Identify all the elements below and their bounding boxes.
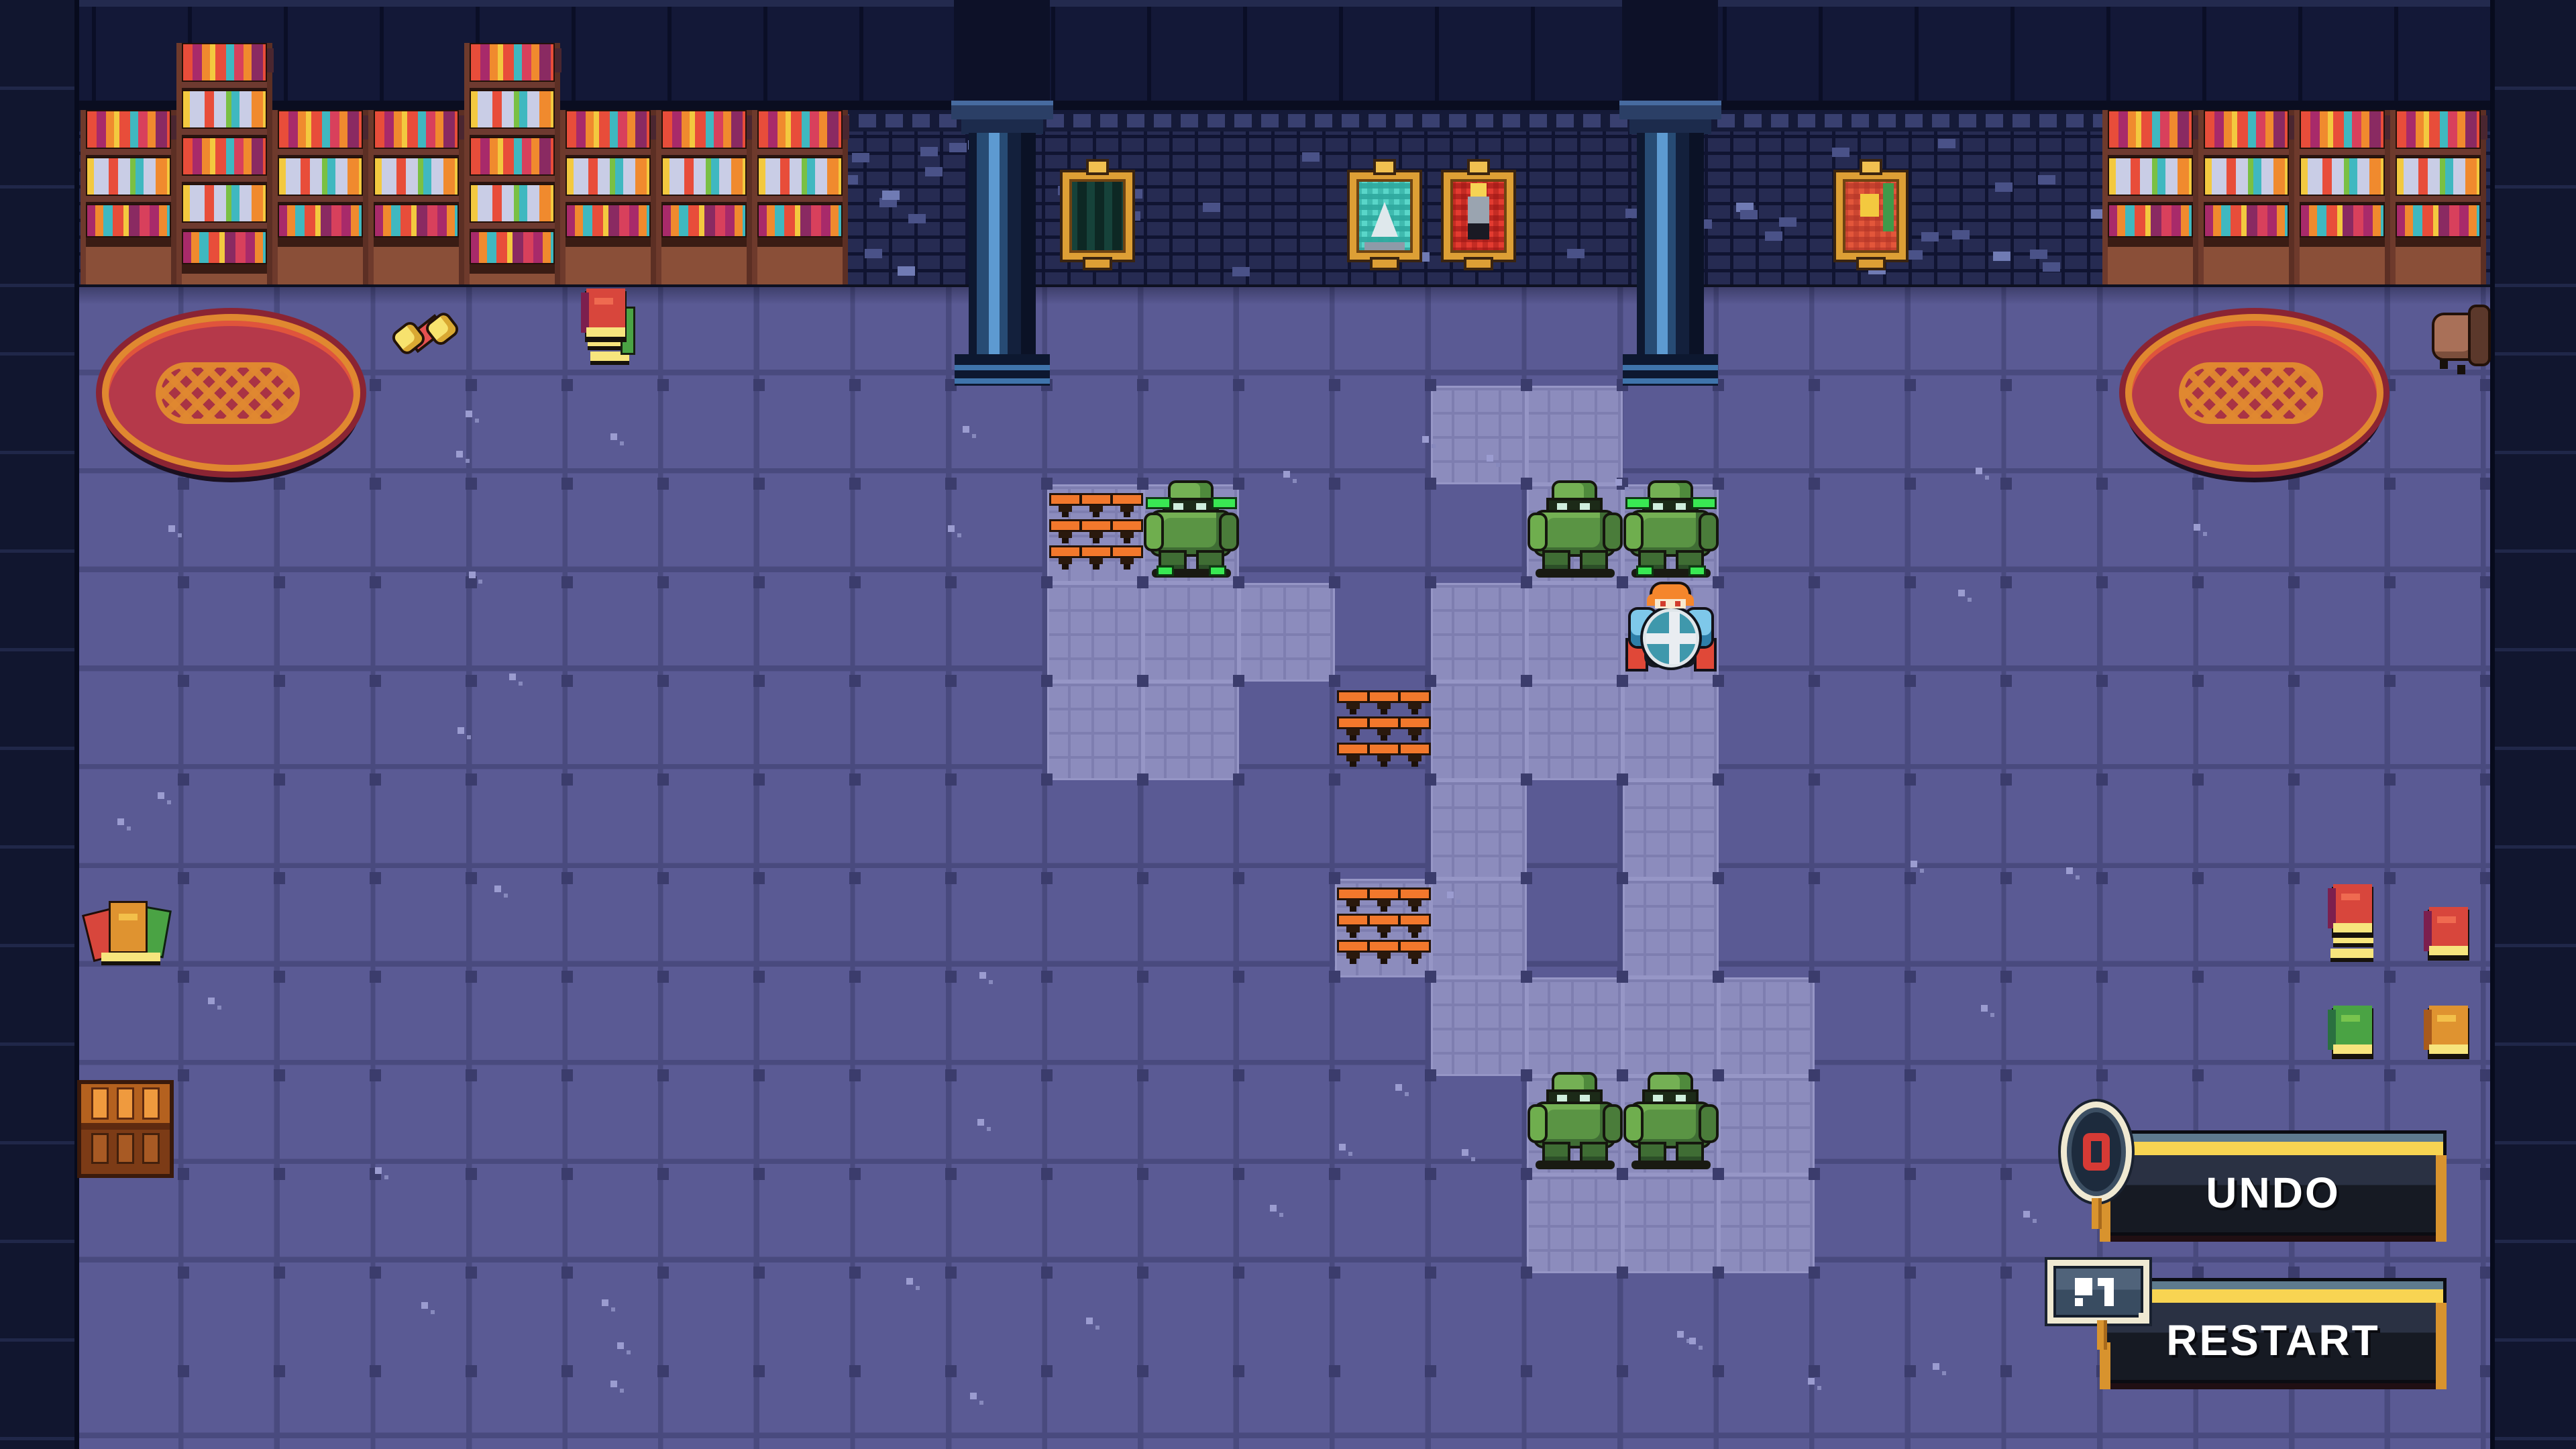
stool-top — [1401, 916, 1429, 924]
stool-leg — [1377, 926, 1391, 932]
stool-top — [1113, 547, 1141, 556]
tile-corner-dot — [2384, 971, 2396, 983]
tile-corner-dot — [945, 872, 957, 884]
rug-weave-pattern — [156, 362, 300, 424]
wall-highlight-brick — [1203, 203, 1220, 212]
book-row — [470, 90, 555, 129]
stool-top — [1082, 521, 1110, 530]
pillar-column — [969, 133, 1036, 356]
floor-sparkle — [1981, 1005, 1988, 1012]
tile-corner-dot — [274, 872, 285, 884]
stool — [1401, 745, 1429, 767]
stool-top — [1370, 692, 1398, 701]
tile-corner-dot — [2384, 478, 2396, 490]
book-spine — [581, 292, 589, 333]
goal-glow-bar — [1690, 568, 1704, 574]
tile-corner-dot — [945, 576, 957, 588]
tile-corner-dot — [1904, 1069, 1916, 1081]
tile-corner-dot — [1425, 872, 1436, 884]
tile-corner-dot — [1521, 1365, 1532, 1377]
floor-tile-light — [1431, 682, 1527, 780]
tile-corner-dot — [1809, 1069, 1820, 1081]
tile-corner-dot — [1041, 971, 1053, 983]
wall-highlight-brick — [1232, 267, 1250, 276]
floor-sparkle — [1283, 471, 1290, 478]
floor-sparkle — [466, 411, 472, 417]
tile-corner-dot — [849, 1365, 861, 1377]
book-row — [566, 110, 651, 149]
stool-top — [1339, 916, 1367, 924]
tile-corner-dot — [2096, 1069, 2108, 1081]
pillar-capital — [951, 101, 1053, 119]
tile-corner-dot — [2384, 1069, 2396, 1081]
stool — [1051, 547, 1079, 570]
floor-sparkle — [458, 727, 464, 734]
tile-corner-dot — [849, 478, 861, 490]
golem-eye — [1653, 503, 1663, 511]
shelf-foot — [470, 264, 555, 274]
book-row — [2396, 110, 2481, 149]
golem-eye — [1676, 1095, 1686, 1102]
bookshelf — [560, 110, 656, 284]
golem-eye — [1653, 1095, 1663, 1102]
stool-top — [1339, 718, 1367, 727]
rug — [2125, 314, 2383, 472]
tile-corner-dot — [753, 478, 765, 490]
stool-leg — [1346, 952, 1360, 959]
bookshelf — [80, 110, 176, 284]
tile-corner-dot — [657, 872, 669, 884]
tile-corner-dot — [1809, 1365, 1820, 1377]
tile-corner-dot — [945, 971, 957, 983]
tile-corner-dot — [1713, 1267, 1724, 1279]
tile-corner-dot — [274, 1365, 285, 1377]
tile-corner-dot — [561, 773, 573, 786]
tile-corner-dot — [1041, 478, 1053, 490]
tile-corner-dot — [2000, 1365, 2012, 1377]
wall-highlight-brick — [882, 191, 900, 200]
tile-corner-dot — [1329, 576, 1340, 588]
tile-corner-dot — [178, 971, 189, 983]
floor-sparkle — [456, 451, 463, 458]
restart-button-label: RESTART — [2103, 1308, 2443, 1373]
shelf-divider — [757, 196, 843, 204]
painting-autumn — [1836, 172, 1906, 260]
tile-corner-dot — [753, 1168, 765, 1180]
tile-corner-dot — [849, 1168, 861, 1180]
golem-body — [1152, 513, 1230, 554]
book-row — [757, 204, 843, 237]
tile-corner-dot — [274, 773, 285, 786]
stool-leg — [1346, 900, 1360, 906]
stool-foot — [1411, 906, 1418, 912]
tile-corner-dot — [1329, 773, 1340, 786]
stool-top — [1370, 718, 1398, 727]
painting-green-stripe — [1883, 183, 1894, 231]
floor-tile-light — [1623, 780, 1719, 879]
book-pages — [586, 327, 625, 337]
stool — [1339, 692, 1367, 715]
shelf-foot — [2396, 237, 2481, 247]
tile-corner-dot — [274, 1267, 285, 1279]
shelf-divider — [2300, 149, 2385, 157]
shelf-divider — [86, 149, 171, 157]
stool-foot — [1350, 932, 1356, 938]
shelf-divider — [2204, 196, 2289, 204]
stool-leg — [1120, 505, 1134, 512]
book-row — [86, 157, 171, 196]
tile-corner-dot — [466, 773, 477, 786]
bookshelf — [2294, 110, 2390, 284]
floor-tile-light — [1239, 583, 1335, 682]
stool-leg — [1120, 557, 1134, 564]
tile-corner-dot — [178, 576, 189, 588]
floor-sparkle — [970, 1393, 977, 1399]
stool — [1370, 692, 1398, 715]
tile-corner-dot — [1233, 1267, 1244, 1279]
shelf-divider — [470, 82, 555, 90]
tile-corner-dot — [561, 1365, 573, 1377]
tile-corner-dot — [2096, 872, 2108, 884]
tile-corner-dot — [561, 1069, 573, 1081]
tile-corner-dot — [2384, 675, 2396, 687]
tile-corner-dot — [178, 1168, 189, 1180]
tile-corner-dot — [753, 1365, 765, 1377]
tile-corner-dot — [945, 1267, 957, 1279]
dark-ceiling-band — [0, 0, 2576, 109]
tile-corner-dot — [2000, 1168, 2012, 1180]
tile-corner-dot — [2096, 379, 2108, 391]
golem-shadow — [1631, 1161, 1711, 1169]
stool-foot — [1093, 538, 1099, 543]
tile-corner-dot — [274, 675, 285, 687]
stool-leg — [1408, 952, 1421, 959]
golem-eye-band — [1549, 500, 1600, 513]
tile-corner-dot — [1904, 1168, 1916, 1180]
tile-corner-dot — [1233, 379, 1244, 391]
pillar-capital — [1619, 101, 1721, 119]
golem-arm-left — [1626, 515, 1641, 549]
floor-sparkle — [158, 792, 164, 799]
tile-corner-dot — [1041, 872, 1053, 884]
goal-glow-bar — [1159, 568, 1172, 574]
book-row — [182, 184, 267, 223]
undo-button-label: UNDO — [2103, 1161, 2443, 1225]
wall-highlight-brick — [1302, 152, 1320, 162]
stool — [1370, 916, 1398, 938]
tile-corner-dot — [753, 576, 765, 588]
tile-corner-dot — [849, 576, 861, 588]
stool-foot — [1124, 512, 1130, 517]
shelf-divider — [2396, 149, 2481, 157]
floor-sparkle — [1422, 436, 1429, 443]
shelf-divider — [374, 149, 459, 157]
rug-weave-pattern — [2179, 362, 2323, 424]
painting-tower — [1468, 197, 1489, 223]
tile-corner-dot — [561, 1168, 573, 1180]
tile-corner-dot — [1425, 478, 1436, 490]
painting-hanger-knob — [1376, 162, 1393, 172]
book-spine — [2424, 1010, 2432, 1050]
tile-corner-dot — [274, 971, 285, 983]
floor-tile-light — [1719, 1076, 1815, 1175]
stool-leg — [1089, 557, 1103, 564]
tile-corner-dot — [466, 872, 477, 884]
tile-corner-dot — [1137, 1069, 1148, 1081]
tile-corner-dot — [753, 379, 765, 391]
stool-leg — [1377, 952, 1391, 959]
tile-corner-dot — [1041, 1069, 1053, 1081]
floor-tile-light — [1047, 583, 1143, 682]
floor-sparkle — [906, 1278, 913, 1285]
floor-tile-light — [1143, 583, 1239, 682]
red-book — [586, 288, 625, 337]
floor-tile-light — [1527, 1175, 1623, 1273]
stool-top — [1401, 718, 1429, 727]
book-row — [86, 204, 171, 237]
undo-button[interactable]: UNDO — [2103, 1134, 2443, 1232]
tile-corner-dot — [2192, 971, 2204, 983]
wall-highlight-brick — [1779, 217, 1796, 227]
tile-corner-dot — [2384, 379, 2396, 391]
tile-corner-dot — [2096, 675, 2108, 687]
page-slab — [2330, 949, 2373, 958]
floor-sparkle — [1976, 468, 1982, 474]
crate-slat — [93, 1135, 107, 1162]
tile-corner-dot — [945, 1069, 957, 1081]
tile-corner-dot — [657, 478, 669, 490]
stool-top — [1401, 745, 1429, 753]
painting-forest — [1063, 172, 1132, 260]
golem-eye — [1173, 503, 1183, 511]
floor-tile-light — [1623, 682, 1719, 780]
floor-sparkle — [963, 426, 969, 433]
golem-arm-left — [1146, 515, 1161, 549]
floor-sparkle — [1447, 892, 1454, 898]
floor-sparkle — [208, 998, 215, 1004]
stool — [1401, 942, 1429, 965]
tile-corner-dot — [274, 576, 285, 588]
tile-corner-dot — [466, 478, 477, 490]
book-row — [470, 231, 555, 264]
floor-sparkle — [1808, 1378, 1815, 1385]
wall-highlight-brick — [1952, 230, 1970, 239]
floor-sparkle — [421, 1302, 428, 1309]
book-label — [2437, 916, 2456, 923]
tile-corner-dot — [657, 1069, 669, 1081]
floor-sparkle — [2194, 524, 2200, 531]
stool-top — [1401, 942, 1429, 951]
tile-corner-dot — [370, 773, 381, 786]
golem — [1530, 482, 1619, 578]
book-pages — [2429, 946, 2468, 955]
shelf-divider — [2108, 196, 2193, 204]
book-label — [594, 298, 613, 305]
stool-foot — [1381, 761, 1387, 767]
stool-leg — [1377, 900, 1391, 906]
floor-sparkle — [617, 1342, 624, 1349]
stool-grid — [1051, 495, 1141, 570]
chair-leg — [2457, 365, 2465, 374]
crate-slat — [144, 1089, 158, 1118]
tile-corner-dot — [1137, 773, 1148, 786]
shelf-divider — [757, 149, 843, 157]
floor-sparkle — [602, 1299, 608, 1306]
green-book — [2333, 1006, 2372, 1054]
tile-corner-dot — [753, 1069, 765, 1081]
stool-top — [1339, 942, 1367, 951]
tile-corner-dot — [274, 1168, 285, 1180]
tile-corner-dot — [2000, 971, 2012, 983]
floor-sparkle — [610, 1381, 617, 1387]
tile-corner-dot — [1233, 1069, 1244, 1081]
tile-corner-dot — [1425, 379, 1436, 391]
wall-highlight-brick — [2030, 250, 2047, 259]
tile-corner-dot — [2192, 1069, 2204, 1081]
tile-corner-dot — [2384, 872, 2396, 884]
shelf-foot — [2108, 237, 2193, 247]
floor-sparkle — [948, 525, 955, 532]
tile-corner-dot — [849, 971, 861, 983]
floor-sparkle — [117, 818, 124, 825]
stool-leg — [1408, 729, 1421, 735]
book-pages — [2333, 923, 2372, 932]
left-void-edge — [0, 0, 79, 1449]
goal-glow-bar — [1693, 499, 1715, 507]
floor-tile-light — [1623, 977, 1719, 1076]
tile-corner-dot — [561, 576, 573, 588]
golem-body — [1631, 1104, 1709, 1146]
floor-sparkle — [1689, 1338, 1696, 1344]
tile-corner-dot — [2288, 576, 2300, 588]
book-row — [2204, 110, 2289, 149]
book-row — [374, 110, 459, 149]
restart-icon-stem — [2097, 1320, 2107, 1350]
tile-corner-dot — [1233, 675, 1244, 687]
tile-corner-dot — [753, 675, 765, 687]
goal-glow-bar — [1211, 568, 1224, 574]
bookshelf-tall — [464, 43, 560, 284]
bookshelf — [272, 110, 368, 284]
golem-arm-right — [1605, 1107, 1620, 1140]
shelf-divider — [374, 196, 459, 204]
tile-corner-dot — [2384, 773, 2396, 786]
restart-button[interactable]: RESTART — [2103, 1281, 2443, 1380]
tile-corner-dot — [945, 675, 957, 687]
page-slab — [590, 352, 629, 361]
tile-corner-dot — [657, 675, 669, 687]
tile-corner-dot — [1713, 971, 1724, 983]
golem-arm-right — [1605, 515, 1620, 549]
tile-corner-dot — [657, 1365, 669, 1377]
golem-on-goal — [1626, 482, 1715, 578]
shelf-divider — [470, 129, 555, 137]
wall-highlight-brick — [1740, 210, 1758, 219]
book-row — [2300, 157, 2385, 196]
shelf-divider — [2108, 149, 2193, 157]
tile-corner-dot — [1521, 1267, 1532, 1279]
golem-arm-right — [1701, 1107, 1716, 1140]
tile-corner-dot — [2000, 1267, 2012, 1279]
tile-corner-dot — [849, 379, 861, 391]
floor-sparkle — [1462, 1149, 1468, 1156]
stool-top — [1401, 890, 1429, 898]
tile-corner-dot — [466, 971, 477, 983]
tile-corner-dot — [466, 379, 477, 391]
tile-corner-dot — [561, 478, 573, 490]
wall-highlight-brick — [852, 153, 869, 162]
stool-foot — [1381, 709, 1387, 714]
book-row — [2108, 204, 2193, 237]
book-row — [661, 204, 747, 237]
right-void-edge — [2490, 0, 2576, 1449]
stool — [1370, 718, 1398, 741]
tile-corner-dot — [1809, 478, 1820, 490]
golem-arm-right — [1222, 515, 1236, 549]
hero-face-band — [1655, 599, 1686, 608]
floor-tile-light — [1431, 879, 1527, 977]
shelf-divider — [566, 149, 651, 157]
stool — [1370, 745, 1398, 767]
floor-sparkle — [1677, 1331, 1684, 1338]
tile-corner-dot — [1904, 971, 1916, 983]
painting-sail-shape — [1371, 202, 1398, 237]
book-spine — [2328, 1010, 2336, 1050]
tile-corner-dot — [1041, 773, 1053, 786]
stool-top — [1339, 692, 1367, 701]
stool-top — [1113, 521, 1141, 530]
book-row — [278, 204, 363, 237]
page-slab — [2333, 934, 2373, 943]
crate-slat — [93, 1089, 107, 1118]
stool — [1113, 547, 1141, 570]
orange-book — [2429, 1006, 2468, 1054]
page-slab — [133, 953, 160, 961]
tile-corner-dot — [1329, 1365, 1340, 1377]
book-pile — [89, 903, 168, 966]
stool-top — [1370, 942, 1398, 951]
wall-highlight-brick — [1832, 148, 1849, 157]
stool-leg — [1377, 702, 1391, 709]
tile-corner-dot — [1041, 675, 1053, 687]
stool-leg — [1408, 755, 1421, 761]
golem-shadow — [1536, 569, 1615, 578]
golem-body — [1536, 1104, 1613, 1146]
wall-highlight-brick — [1993, 252, 2010, 261]
tile-corner-dot — [1904, 872, 1916, 884]
tile-corner-dot — [370, 1365, 381, 1377]
bookshelf — [656, 110, 752, 284]
tile-corner-dot — [1329, 872, 1340, 884]
tile-corner-dot — [561, 971, 573, 983]
tile-corner-dot — [2288, 773, 2300, 786]
wall-highlight-brick — [1765, 231, 1782, 241]
stool — [1113, 495, 1141, 518]
stool-foot — [1411, 932, 1418, 938]
painting-flame — [1470, 183, 1487, 197]
book-row — [374, 204, 459, 237]
tile-corner-dot — [370, 379, 381, 391]
floor-tile-light — [1047, 682, 1143, 780]
painting-bottom-tab — [1085, 260, 1110, 268]
hero-eye — [1675, 601, 1680, 606]
book-row — [2204, 204, 2289, 237]
tile-corner-dot — [1425, 1069, 1436, 1081]
tile-corner-dot — [2288, 971, 2300, 983]
book-row — [182, 231, 267, 264]
golem — [1626, 1073, 1715, 1170]
stool-leg — [1408, 702, 1421, 709]
